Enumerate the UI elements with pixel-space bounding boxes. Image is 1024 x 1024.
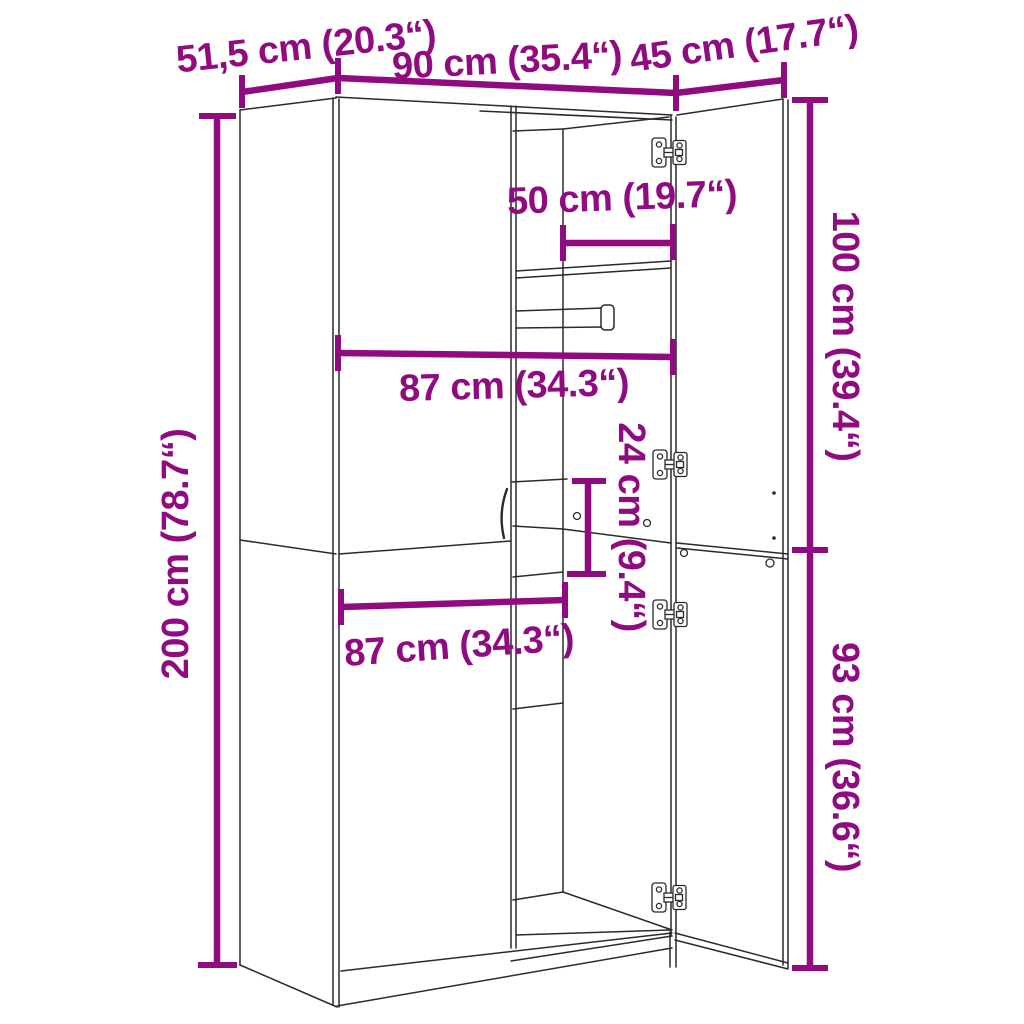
hinge-part bbox=[676, 150, 683, 156]
pin-hole-icon bbox=[766, 559, 774, 567]
cabinet-line bbox=[339, 541, 511, 554]
hinge-part bbox=[657, 454, 662, 459]
dimension-upper-door-height: 100 cm (39.4“) bbox=[792, 100, 866, 550]
dimension-label-total-height: 200 cm (78.7“) bbox=[155, 429, 197, 680]
cabinet-line bbox=[677, 543, 788, 554]
screw-dot-icon bbox=[772, 536, 776, 540]
cabinet-line bbox=[513, 703, 563, 709]
cabinet-line bbox=[563, 117, 669, 129]
dimension-line bbox=[242, 78, 338, 92]
cabinet-line bbox=[513, 526, 563, 529]
cabinet-drawing bbox=[240, 97, 788, 1007]
cabinet-line bbox=[675, 940, 788, 969]
hinge-part bbox=[678, 605, 683, 610]
dimension-lower-door-height: 93 cm (36.6“) bbox=[792, 550, 866, 968]
cabinet-line bbox=[677, 548, 788, 559]
dimension-inner-depth: 50 cm (19.7“) bbox=[506, 173, 737, 261]
hinges bbox=[652, 138, 687, 912]
hinge-icon bbox=[652, 138, 686, 167]
door-handle-icon bbox=[502, 489, 507, 538]
hinge-part bbox=[656, 903, 661, 908]
cabinet-line bbox=[240, 98, 336, 110]
cabinet-line bbox=[516, 930, 670, 935]
hinge-part bbox=[677, 901, 682, 906]
cabinet-line bbox=[513, 129, 563, 131]
hinge-part bbox=[676, 895, 683, 901]
pin-hole-icon bbox=[574, 513, 581, 520]
hinge-part bbox=[677, 888, 682, 893]
dimension-label-lower-inner-width: 87 cm (34.3“) bbox=[343, 617, 575, 675]
dimension-label-inner-depth: 50 cm (19.7“) bbox=[506, 173, 737, 223]
hinge-part bbox=[677, 612, 684, 618]
hinge-part bbox=[678, 468, 683, 473]
cabinet-line bbox=[677, 99, 783, 115]
cabinet-line bbox=[516, 327, 603, 328]
dimension-line bbox=[341, 600, 565, 607]
dimension-lower-inner-width: 87 cm (34.3“) bbox=[341, 582, 575, 675]
wardrobe-dimension-diagram: 51,5 cm (20.3“)90 cm (35.4“)45 cm (17.7“… bbox=[0, 0, 1024, 1024]
hinge-part bbox=[657, 470, 662, 475]
dimension-label-upper-inner-width: 87 cm (34.3“) bbox=[398, 362, 629, 410]
cabinet-line bbox=[513, 572, 563, 577]
hinge-part bbox=[657, 604, 662, 609]
pin-hole-icon bbox=[681, 550, 688, 557]
hinge-part bbox=[677, 143, 682, 148]
dimension-door-width: 45 cm (17.7“) bbox=[627, 7, 861, 98]
hinge-part bbox=[677, 462, 684, 468]
dimension-total-height: 200 cm (78.7“) bbox=[155, 116, 237, 965]
cabinet-line bbox=[675, 933, 788, 963]
dimension-cubby-height: 24 cm (9.4“) bbox=[567, 422, 652, 631]
hinge-icon bbox=[652, 883, 686, 912]
dimension-upper-inner-width: 87 cm (34.3“) bbox=[338, 335, 673, 410]
dimension-label-lower-door-height: 93 cm (36.6“) bbox=[824, 642, 866, 872]
dimension-line bbox=[338, 353, 673, 357]
hinge-part bbox=[657, 620, 662, 625]
hinge-icon bbox=[653, 600, 687, 629]
cabinet-line bbox=[240, 540, 336, 554]
cabinet-line bbox=[341, 933, 672, 971]
diagram-canvas: 51,5 cm (20.3“)90 cm (35.4“)45 cm (17.7“… bbox=[0, 0, 1024, 1024]
dimension-line bbox=[676, 80, 784, 93]
cabinet-line bbox=[512, 479, 567, 482]
screw-dot-icon bbox=[772, 491, 776, 495]
dimension-label-upper-door-height: 100 cm (39.4“) bbox=[824, 211, 866, 462]
cabinet-line bbox=[516, 308, 603, 311]
dimension-label-cubby-height: 24 cm (9.4“) bbox=[610, 422, 652, 631]
cabinet-line bbox=[480, 111, 672, 120]
hinge-part bbox=[656, 142, 661, 147]
hinge-part bbox=[656, 158, 661, 163]
cabinet-line bbox=[240, 965, 337, 1007]
hinge-part bbox=[677, 156, 682, 161]
cabinet-line bbox=[337, 948, 672, 1006]
hinge-part bbox=[678, 455, 683, 460]
hinge-part bbox=[656, 887, 661, 892]
hinge-part bbox=[678, 618, 683, 623]
clothes-rail-end-icon bbox=[601, 305, 614, 330]
hinge-icon bbox=[653, 450, 687, 479]
cabinet-line bbox=[513, 892, 563, 900]
dimension-label-door-width: 45 cm (17.7“) bbox=[627, 7, 861, 81]
